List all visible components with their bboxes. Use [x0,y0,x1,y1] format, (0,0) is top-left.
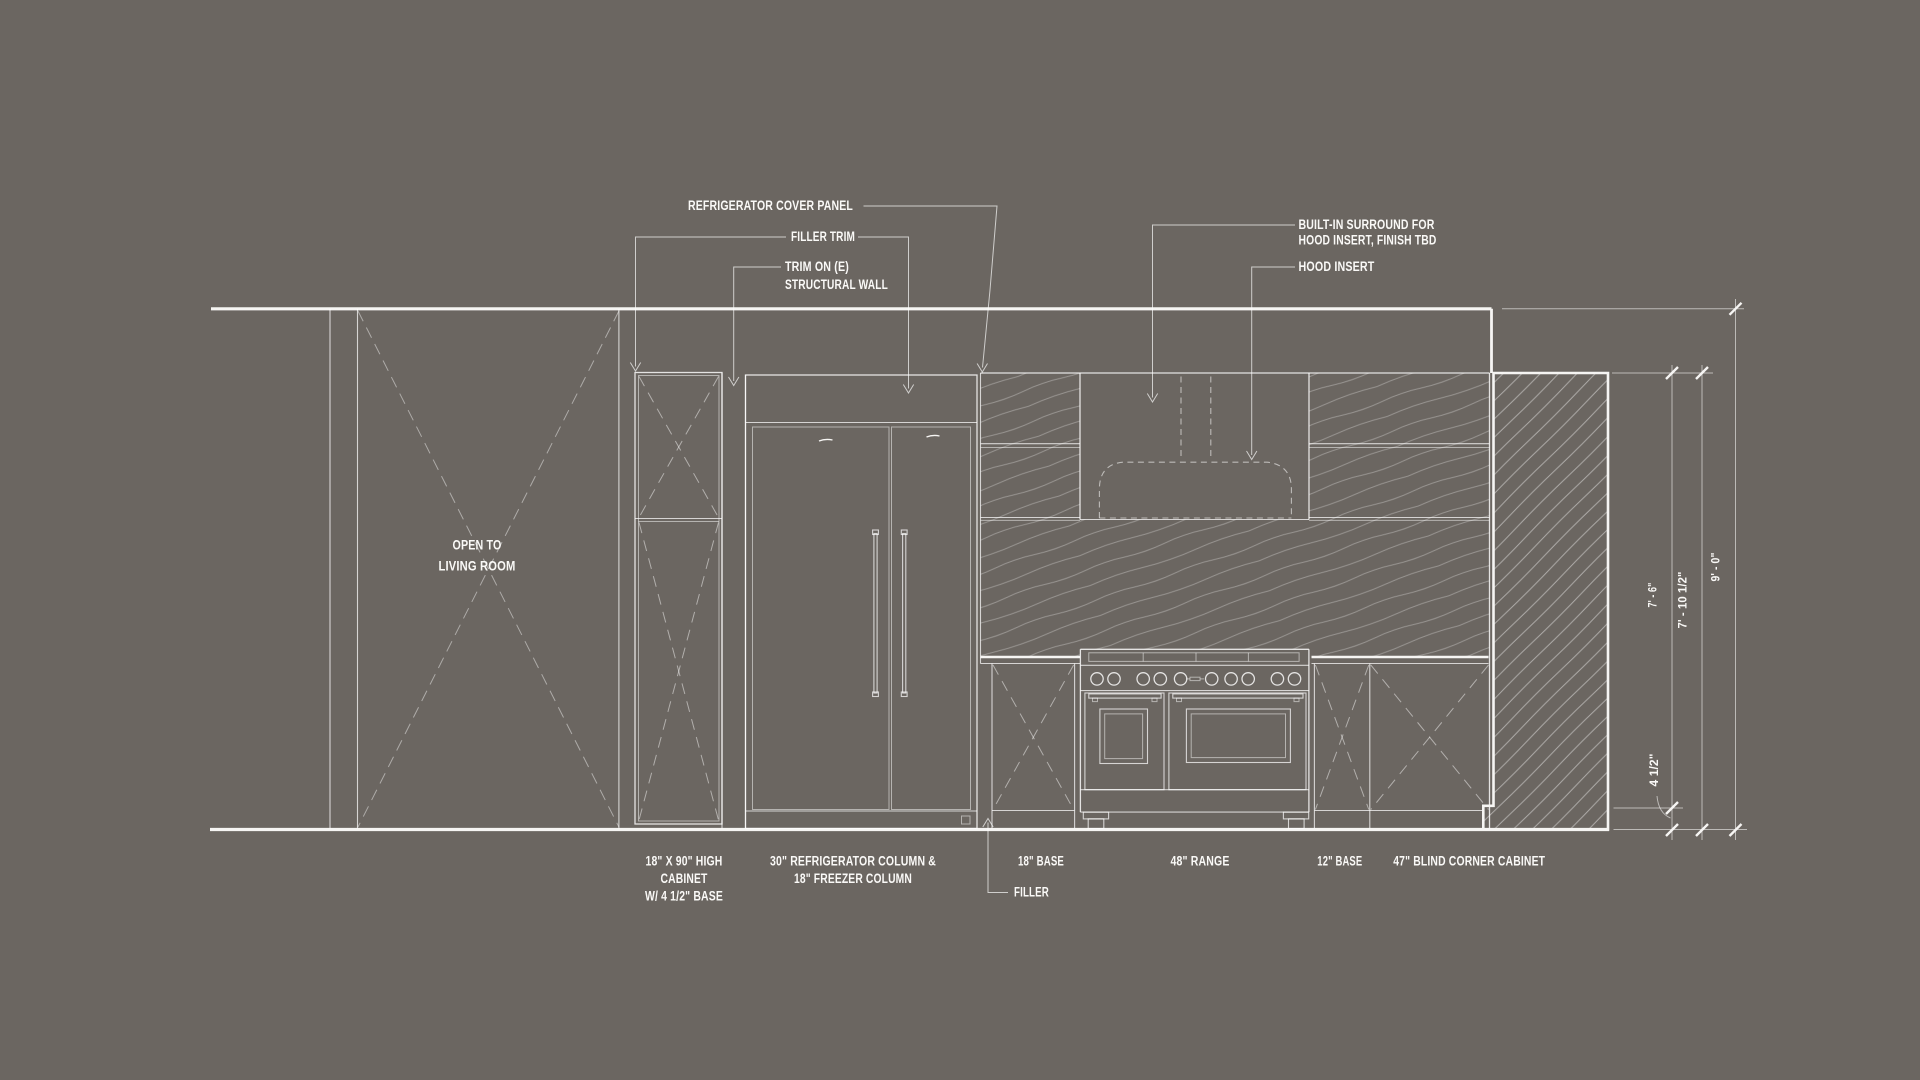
svg-text:OPEN TO: OPEN TO [453,538,502,553]
svg-text:48" RANGE: 48" RANGE [1171,853,1230,868]
svg-text:STRUCTURAL WALL: STRUCTURAL WALL [785,277,888,292]
svg-text:18" X 90" HIGH: 18" X 90" HIGH [646,853,723,868]
svg-text:30" REFRIGERATOR COLUMN &: 30" REFRIGERATOR COLUMN & [770,853,936,868]
svg-text:18" BASE: 18" BASE [1018,853,1064,868]
svg-text:4 1/2": 4 1/2" [1649,754,1661,787]
svg-text:CABINET: CABINET [661,871,708,886]
svg-text:TRIM ON (E): TRIM ON (E) [785,259,849,274]
svg-text:FILLER: FILLER [1014,884,1049,899]
svg-text:12" BASE: 12" BASE [1317,853,1362,868]
svg-text:18" FREEZER COLUMN: 18" FREEZER COLUMN [794,871,912,886]
svg-text:BUILT-IN SURROUND FOR: BUILT-IN SURROUND FOR [1299,217,1435,232]
svg-text:REFRIGERATOR COVER PANEL: REFRIGERATOR COVER PANEL [688,198,853,213]
svg-text:FILLER TRIM: FILLER TRIM [791,229,855,244]
svg-text:W/ 4 1/2" BASE: W/ 4 1/2" BASE [645,888,723,903]
svg-text:LIVING ROOM: LIVING ROOM [439,559,516,574]
svg-text:7' - 6": 7' - 6" [1648,583,1660,608]
svg-text:HOOD INSERT, FINISH TBD: HOOD INSERT, FINISH TBD [1299,232,1437,247]
svg-text:HOOD INSERT: HOOD INSERT [1299,259,1375,274]
svg-text:7' - 10 1/2": 7' - 10 1/2" [1678,572,1690,629]
svg-text:9' - 0": 9' - 0" [1711,553,1723,582]
svg-text:47" BLIND CORNER CABINET: 47" BLIND CORNER CABINET [1393,853,1545,868]
